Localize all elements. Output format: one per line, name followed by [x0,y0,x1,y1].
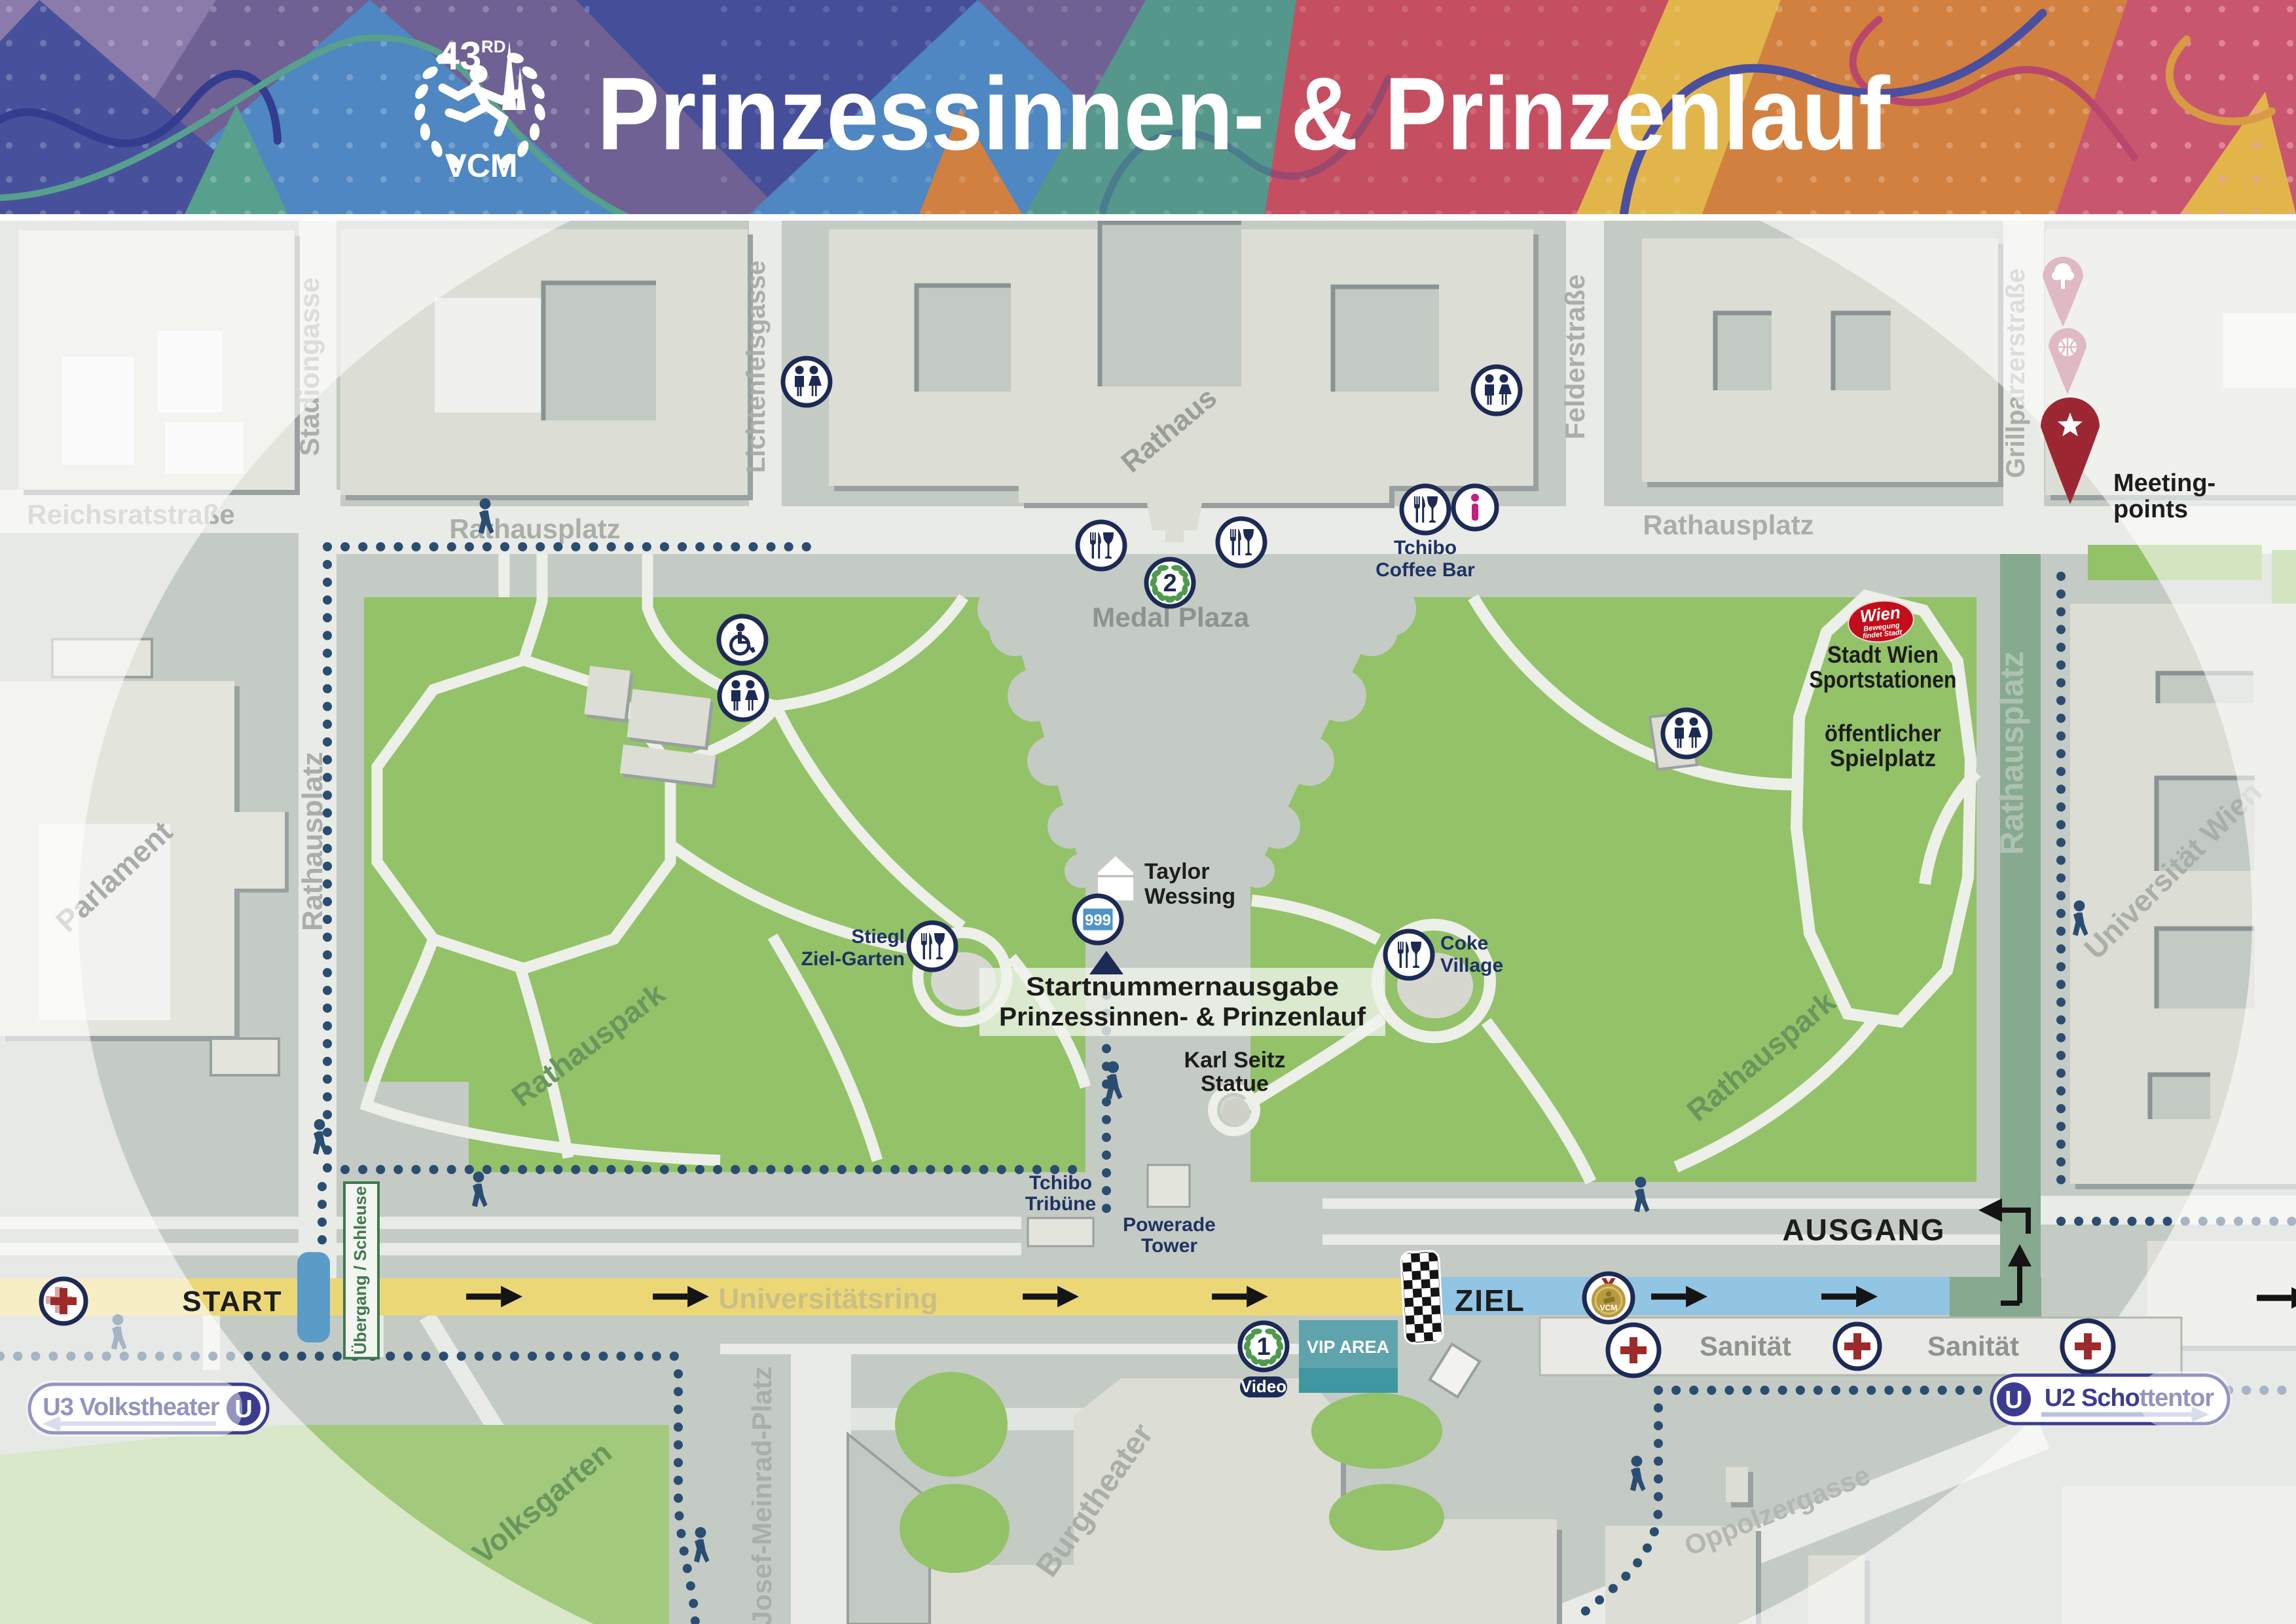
svg-text:Tribüne: Tribüne [1025,1193,1096,1215]
svg-text:Lichtenfelsgasse: Lichtenfelsgasse [742,261,771,473]
svg-text:RD: RD [481,37,506,56]
svg-text:VCM: VCM [1600,1303,1618,1312]
svg-text:Felderstraße: Felderstraße [1559,274,1590,439]
svg-text:öffentlicher: öffentlicher [1825,720,1941,747]
svg-text:Prinzessinnen- & Prinzenlauf: Prinzessinnen- & Prinzenlauf [999,1003,1366,1031]
svg-text:START: START [182,1285,282,1318]
svg-text:Karl Seitz: Karl Seitz [1184,1048,1286,1073]
svg-text:Wessing: Wessing [1144,884,1235,909]
svg-text:Tchibo: Tchibo [1394,537,1457,559]
svg-text:Spielplatz: Spielplatz [1830,745,1936,771]
svg-text:Statue: Statue [1201,1071,1269,1096]
svg-text:Sanität: Sanität [1700,1331,1791,1361]
svg-text:Tchibo: Tchibo [1029,1172,1092,1194]
svg-text:1: 1 [1256,1333,1270,1361]
svg-text:Sportstationen: Sportstationen [1810,666,1957,693]
svg-text:AUSGANG: AUSGANG [1782,1213,1945,1247]
svg-text:Universitätsring: Universitätsring [719,1283,938,1315]
svg-text:U: U [2005,1386,2022,1414]
svg-text:Taylor: Taylor [1144,859,1210,884]
svg-text:Stadt Wien: Stadt Wien [1827,641,1939,668]
svg-text:Josef-Meinrad-Platz: Josef-Meinrad-Platz [746,1367,777,1624]
svg-text:Rathausplatz: Rathausplatz [1643,509,1813,540]
svg-text:Coffee Bar: Coffee Bar [1376,559,1475,581]
svg-text:Übergang / Schleuse: Übergang / Schleuse [350,1186,370,1354]
svg-text:2: 2 [1163,570,1176,597]
svg-text:Powerade: Powerade [1123,1214,1216,1236]
svg-text:Ziel-Garten: Ziel-Garten [801,948,905,970]
svg-text:Startnummernausgabe: Startnummernausgabe [1026,972,1339,1001]
svg-text:Coke: Coke [1440,932,1488,954]
svg-text:points: points [2113,496,2188,523]
svg-text:Tower: Tower [1141,1235,1197,1257]
svg-text:Prinzessinnen- & Prinzenlauf: Prinzessinnen- & Prinzenlauf [597,56,1890,172]
svg-text:Village: Village [1440,955,1503,976]
svg-text:Rathausplatz: Rathausplatz [1994,651,2030,855]
svg-text:Meeting-: Meeting- [2113,470,2215,497]
svg-text:999: 999 [1085,912,1111,929]
svg-text:VCM: VCM [445,147,517,184]
svg-text:ZIEL: ZIEL [1455,1283,1525,1318]
svg-text:Rathausplatz: Rathausplatz [449,513,620,544]
svg-text:Stiegl: Stiegl [851,926,905,948]
svg-text:VIP AREA: VIP AREA [1307,1337,1389,1357]
svg-text:Video: Video [1241,1376,1286,1396]
svg-text:Sanität: Sanität [1927,1331,2019,1361]
